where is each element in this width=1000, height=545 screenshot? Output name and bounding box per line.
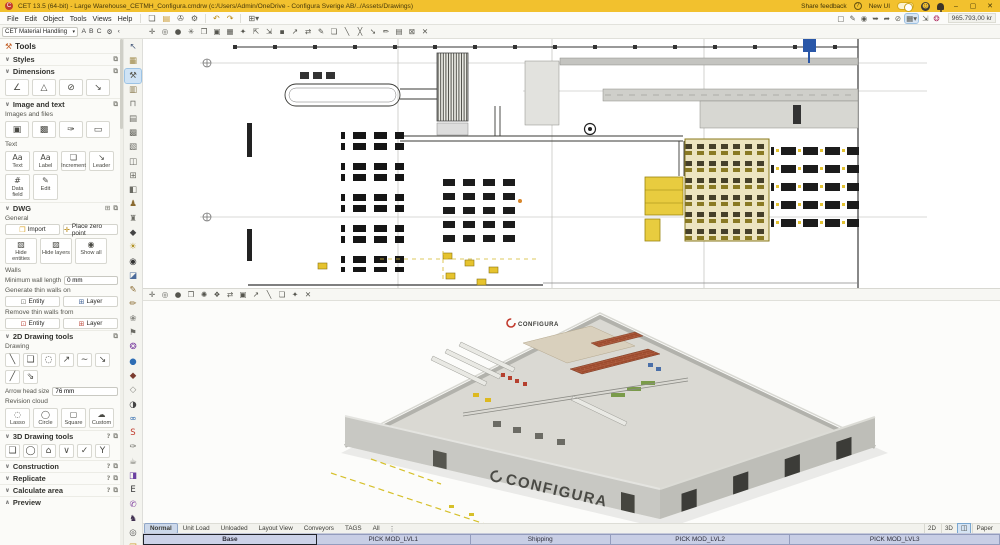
popout-icon[interactable]: ⧉: [113, 67, 118, 76]
sketch-icon[interactable]: ✏: [125, 297, 141, 311]
hatched-rack-block: [437, 53, 468, 121]
snap-line-icon[interactable]: ➥: [871, 14, 879, 23]
render-mode-icon[interactable]: ▣: [237, 289, 249, 300]
tool-label: Show all: [80, 250, 101, 256]
revision-lasso-tool[interactable]: ◌ Lasso: [5, 408, 30, 428]
component-icon-strip: ↖▦⚒▥⊓▤▩▧◫⊞◧♟♜◆☀◉◪✎✏❀⚑❂●◆◇◑∞S✑☕◨E✆♞◎❒: [124, 39, 143, 545]
tool-label: Edit: [41, 186, 51, 192]
check-3d-icon[interactable]: ✓: [77, 444, 92, 458]
tool-label: Increment: [61, 163, 86, 169]
data-field-tool[interactable]: # Data field: [5, 174, 30, 200]
arrow-icon[interactable]: ➘: [367, 26, 379, 37]
swap-3d-icon[interactable]: ⇄: [224, 289, 236, 300]
fit-view-icon[interactable]: ❒: [185, 289, 197, 300]
level-segment[interactable]: PICK MOD_LVL2: [611, 534, 791, 545]
arrow-head-size-input[interactable]: [52, 387, 118, 396]
layer-icon: ⊞: [79, 298, 85, 306]
valley-3d-icon[interactable]: ∨: [59, 444, 74, 458]
monitor-icon[interactable]: ◪: [125, 269, 141, 283]
insert-image-icon[interactable]: ▣: [5, 121, 29, 138]
favorite-slot-button[interactable]: C: [95, 28, 103, 35]
polygon-3d-icon[interactable]: ⌂: [41, 444, 56, 458]
favorite-slot-button[interactable]: A: [80, 28, 88, 35]
pallet-storage-center: [440, 177, 520, 249]
tool-glyph-icon: ▢: [70, 411, 78, 419]
text-tool[interactable]: Aa Text: [5, 151, 30, 171]
settings-gear-icon[interactable]: ⚙: [189, 14, 200, 23]
new-ui-label: New UI: [869, 3, 890, 10]
undo-icon[interactable]: ↶: [211, 14, 222, 23]
min-wall-length-input[interactable]: [64, 276, 118, 285]
viewport-3d-toolbar: ✛◎●❒✺❖⇄▣↗╲❏✦✕: [143, 288, 1000, 301]
maximize-button[interactable]: ▢: [968, 2, 978, 10]
tool-label: Label: [39, 163, 53, 169]
menu-item[interactable]: File: [4, 13, 22, 24]
increment-tool[interactable]: ❏ Increment: [61, 151, 86, 171]
tool-label: Square: [64, 420, 82, 426]
unit-loads-icon[interactable]: ▥: [125, 83, 141, 97]
scene-tabs-bar: NormalUnit LoadUnloadedLayout ViewConvey…: [143, 523, 1000, 533]
menu-bar: FileEditObjectToolsViewsHelp ❏▤✇⚙ ↶↷ ⊞▾ …: [0, 12, 1000, 25]
entity-icon: ⊡: [21, 320, 27, 328]
pallet-rack-icon[interactable]: ▤: [125, 111, 141, 125]
menu-item[interactable]: Help: [115, 13, 136, 24]
images-files-label: Images and files: [0, 110, 123, 119]
pallets-icon[interactable]: ▦: [125, 54, 141, 68]
sync-icon[interactable]: ∞: [125, 412, 141, 426]
level-segment[interactable]: PICK MOD_LVL3: [790, 534, 1000, 545]
mezzanine-icon[interactable]: ▧: [125, 140, 141, 154]
scene-tab[interactable]: Unit Load: [178, 524, 215, 533]
revision-custom-tool[interactable]: ☁ Custom: [89, 408, 114, 428]
popout-icon[interactable]: ⧉: [113, 486, 118, 495]
level-segment[interactable]: Base: [143, 534, 317, 545]
remove-layer-button[interactable]: ⊞Layer: [63, 318, 118, 329]
revision-cloud-label: Revision cloud: [0, 397, 123, 406]
cylinder-3d-icon[interactable]: ◯: [23, 444, 38, 458]
menu-item[interactable]: Views: [90, 13, 115, 24]
linear-dimension-icon[interactable]: ↘: [86, 79, 110, 96]
close-viewport-icon[interactable]: ✕: [419, 26, 431, 37]
section-replicate[interactable]: ∨Replicate ?⧉: [0, 472, 123, 484]
zoom-selection-3d-icon[interactable]: ●: [172, 289, 184, 300]
section-3d-drawing-tools[interactable]: ∨3D Drawing tools ?⧉: [0, 430, 123, 442]
hide-layers-button[interactable]: ▨ Hide layers: [40, 238, 72, 264]
tool-glyph-icon: ◉: [88, 241, 95, 249]
fill-icon[interactable]: ▪: [276, 26, 288, 37]
viewport-image-icon[interactable]: ▭: [86, 121, 110, 138]
title-bar: C CET 13.5 (64-bit) - Large Warehouse_CE…: [0, 0, 1000, 12]
tool-label: Data field: [6, 186, 29, 198]
grid-icon[interactable]: ▦: [224, 26, 236, 37]
open-folder-icon[interactable]: ▤: [161, 14, 173, 23]
tool-label: Circle: [38, 420, 52, 426]
viewport-2d-toolbar: ✛◎●✳❐▣▦✦⇱⇲▪↗⇄✎❏╲╳➘✏▤⊠✕: [143, 25, 1000, 39]
snap-icon[interactable]: ✦: [237, 26, 249, 37]
revision-circle-tool[interactable]: ◯ Circle: [33, 408, 58, 428]
min-wall-length-label: Minimum wall length: [5, 277, 61, 284]
tool-label: Lasso: [10, 420, 25, 426]
tool-label: Hide entities: [6, 250, 36, 262]
loop-stations: [300, 72, 335, 79]
annotation-icon[interactable]: ✑: [125, 440, 141, 454]
text-label: Text: [0, 140, 123, 149]
tools-panel-header: ⚒ Tools: [0, 39, 123, 53]
region-icon[interactable]: ⊠: [406, 26, 418, 37]
folder-icon: ❒: [19, 226, 25, 234]
ribbon-gear-icon[interactable]: ⚙: [105, 28, 114, 36]
share-feedback-link[interactable]: Share feedback: [801, 3, 847, 10]
snap-point-icon[interactable]: ◉: [860, 14, 869, 23]
move-3d-icon[interactable]: ↗: [250, 289, 262, 300]
section-preview[interactable]: ∧Preview: [0, 496, 123, 508]
area-dimension-icon[interactable]: △: [32, 79, 56, 96]
previous-view-icon[interactable]: ❐: [198, 26, 210, 37]
generate-entity-button[interactable]: ⊡Entity: [5, 296, 60, 307]
snap-angle-icon[interactable]: ➦: [883, 14, 891, 23]
tool-glyph-icon: ▧: [17, 241, 25, 249]
scene-tab[interactable]: Conveyors: [299, 524, 339, 533]
media-panel-icon[interactable]: ◨: [125, 469, 141, 483]
zoom-extents-icon[interactable]: ✳: [185, 26, 197, 37]
view-3d-button[interactable]: 3D: [941, 524, 956, 533]
cad-icon[interactable]: ◆: [125, 369, 141, 383]
scene-tab[interactable]: Layout View: [254, 524, 298, 533]
dwg-list-icon[interactable]: ⊞: [105, 204, 110, 213]
menu-item[interactable]: Tools: [67, 13, 90, 24]
edit-text-tool[interactable]: ✎ Edit: [33, 174, 58, 200]
section-dwg[interactable]: ∨DWG ⊞⧉: [0, 202, 123, 214]
line-icon[interactable]: ╲: [341, 26, 353, 37]
collapse-panel-icon[interactable]: ‹: [116, 28, 121, 35]
configura-logo: CONFIGURA: [507, 319, 559, 328]
place-zero-point-button[interactable]: ✛ Place zero point: [63, 224, 118, 235]
minimize-button[interactable]: –: [951, 3, 961, 10]
new-ui-toggle[interactable]: [897, 2, 914, 10]
save-icon[interactable]: ✇: [175, 14, 186, 23]
new-drawing-icon[interactable]: ❏: [146, 14, 157, 23]
coordinates-readout: 965.793,00 kr: [948, 13, 996, 23]
copy-3d-icon[interactable]: ❏: [276, 289, 288, 300]
erase-icon[interactable]: ╳: [354, 26, 366, 37]
popout-icon[interactable]: ⧉: [113, 432, 118, 441]
render-icon[interactable]: ❀: [125, 312, 141, 326]
diameter-dimension-icon[interactable]: ⊘: [59, 79, 83, 96]
arrow-head-size-label: Arrow head size: [5, 388, 49, 395]
scene-tab[interactable]: TAGS: [340, 524, 367, 533]
machinery-icon[interactable]: ◧: [125, 183, 141, 197]
layer-icon: ⊞: [79, 320, 85, 328]
section-calculate-area[interactable]: ∨Calculate area ?⧉: [0, 484, 123, 496]
more-tabs-icon[interactable]: ⋮: [386, 525, 399, 533]
tool-glyph-icon: ▨: [52, 241, 60, 249]
angular-dimension-icon[interactable]: ∠: [5, 79, 29, 96]
redo-icon[interactable]: ↷: [225, 14, 236, 23]
level-segment[interactable]: Shipping: [471, 534, 611, 545]
section-icon[interactable]: ╲: [263, 289, 275, 300]
close-3d-viewport-icon[interactable]: ✕: [302, 289, 314, 300]
import-button[interactable]: ❒ Import: [5, 224, 60, 235]
level-bar: BasePICK MOD_LVL1ShippingPICK MOD_LVL2PI…: [143, 533, 1000, 545]
tool-glyph-icon: Aa: [12, 154, 22, 162]
e-learning-icon[interactable]: E: [125, 483, 141, 497]
popout-icon[interactable]: ⧉: [113, 462, 118, 471]
tool-glyph-icon: Aa: [40, 154, 50, 162]
flag-icon[interactable]: ⚑: [125, 326, 141, 340]
help-icon[interactable]: ?: [107, 474, 111, 483]
move-icon[interactable]: ↗: [289, 26, 301, 37]
scene-tab[interactable]: All: [368, 524, 385, 533]
menu-item[interactable]: Edit: [22, 13, 40, 24]
section-styles[interactable]: ∨Styles ⧉: [0, 53, 123, 65]
tool-label: Leader: [93, 163, 110, 169]
sidebar-scrollbar[interactable]: [120, 39, 123, 545]
label-tool[interactable]: Aa Label: [33, 151, 58, 171]
vehicle-icon[interactable]: ◉: [125, 254, 141, 268]
remove-entity-button[interactable]: ⊡Entity: [5, 318, 60, 329]
insert-table-icon[interactable]: ⊞▾: [246, 14, 261, 23]
section-construction[interactable]: ∨Construction ?⧉: [0, 460, 123, 472]
sun-icon[interactable]: ✦: [289, 289, 301, 300]
send-back-icon[interactable]: ⇱: [250, 26, 262, 37]
gauge-icon[interactable]: ◑: [125, 397, 141, 411]
hide-entities-button[interactable]: ▧ Hide entities: [5, 238, 37, 264]
copy-icon[interactable]: ❏: [328, 26, 340, 37]
rectangle-tool-icon[interactable]: ❑: [23, 353, 38, 367]
save-view-icon[interactable]: ▣: [211, 26, 223, 37]
scene-tab[interactable]: Normal: [145, 524, 177, 533]
folder-icon[interactable]: ❒: [125, 540, 141, 545]
viewport-3d-canvas[interactable]: CONFIGURA: [143, 301, 1000, 523]
material-handling-tools-icon[interactable]: ⚒: [125, 69, 141, 83]
help-icon[interactable]: ?: [107, 486, 111, 495]
revision-square-tool[interactable]: ▢ Square: [61, 408, 86, 428]
annotate-icon[interactable]: ✏: [380, 26, 392, 37]
dock-equipment-icon[interactable]: ⊓: [125, 97, 141, 111]
tool-glyph-icon: ☁: [98, 411, 106, 419]
record-icon[interactable]: ❂: [932, 14, 940, 23]
generate-layer-button[interactable]: ⊞Layer: [63, 296, 118, 307]
pinwheel-icon[interactable]: ❂: [125, 340, 141, 354]
drawing-label: Drawing: [0, 342, 123, 351]
leader-tool[interactable]: ↘ Leader: [89, 151, 114, 171]
frame-icon[interactable]: ▢: [836, 14, 845, 23]
remove-thin-walls-label: Remove thin walls from: [0, 308, 123, 317]
crane-symbol: [803, 39, 816, 52]
split-view-button[interactable]: ◫: [958, 524, 971, 533]
tool-label: Custom: [92, 420, 111, 426]
tool-label: Hide layers: [42, 250, 70, 256]
menu-item[interactable]: Object: [40, 13, 67, 24]
tool-label: Text: [12, 163, 22, 169]
wye-3d-icon[interactable]: Y: [95, 444, 110, 458]
conveyor-icon[interactable]: ◫: [125, 154, 141, 168]
tool-glyph-icon: ❏: [70, 154, 77, 162]
favorite-slot-button[interactable]: B: [88, 28, 96, 35]
search-icon[interactable]: ◎: [125, 526, 141, 540]
line-tool-icon[interactable]: ╲: [5, 353, 20, 367]
box-3d-icon[interactable]: ❑: [5, 444, 20, 458]
forklift-icon[interactable]: ◆: [125, 226, 141, 240]
window-title: CET 13.5 (64-bit) - Large Warehouse_CETM…: [18, 3, 413, 10]
app-logo-icon: C: [5, 2, 13, 10]
operator-icon[interactable]: ♟: [125, 197, 141, 211]
extension-ribbon: CET Material Handling▾ ABC ⚙ ‹: [0, 25, 143, 39]
workstation-icon[interactable]: ⊞: [125, 169, 141, 183]
lighting-icon[interactable]: ☀: [125, 240, 141, 254]
tools-icon: ⚒: [5, 42, 12, 51]
leader-arrow-tool-icon[interactable]: ⇘: [23, 370, 38, 384]
grid-settings-icon[interactable]: ▦▾: [905, 14, 918, 23]
help-icon[interactable]: ?: [107, 462, 111, 471]
image-frame-icon[interactable]: ▩: [32, 121, 56, 138]
select-tool-icon[interactable]: ↖: [125, 40, 141, 54]
extension-selector[interactable]: CET Material Handling▾: [2, 27, 78, 37]
level-segment[interactable]: PICK MOD_LVL1: [317, 534, 471, 545]
warehouse-3d-render: CONFIGURA: [143, 301, 1000, 523]
arrow-tool-icon[interactable]: ↗: [59, 353, 74, 367]
edit-icon[interactable]: ✎: [315, 26, 327, 37]
pan-3d-icon[interactable]: ✛: [146, 289, 158, 300]
generate-thin-walls-label: Generate thin walls on: [0, 286, 123, 295]
swap-icon[interactable]: ⇄: [302, 26, 314, 37]
user-avatar[interactable]: ☻: [921, 2, 930, 11]
pencil-icon[interactable]: ✎: [125, 283, 141, 297]
entity-icon: ⊡: [21, 298, 27, 306]
shelving-icon[interactable]: ▩: [125, 126, 141, 140]
sketchup-icon[interactable]: S: [125, 426, 141, 440]
section-image-and-text[interactable]: ∨Image and text ⧉: [0, 98, 123, 110]
svg-text:CONFIGURA: CONFIGURA: [518, 322, 559, 328]
layers-icon[interactable]: ▤: [393, 26, 405, 37]
section-dimensions[interactable]: ∨Dimensions ⧉: [0, 65, 123, 77]
pick-module: [645, 139, 769, 241]
popout-icon[interactable]: ⧉: [113, 204, 118, 213]
bucket-icon[interactable]: ☕: [125, 455, 141, 469]
crane-icon[interactable]: ♜: [125, 212, 141, 226]
popout-icon[interactable]: ⧉: [113, 474, 118, 483]
view-2d-button[interactable]: 2D: [924, 524, 939, 533]
floorplan-drawing: [143, 39, 1000, 288]
curve-tool-icon[interactable]: ∼: [77, 353, 92, 367]
tool-glyph-icon: ↘: [98, 154, 105, 162]
support-icon[interactable]: ✆: [125, 498, 141, 512]
scene-tab[interactable]: Unloaded: [216, 524, 253, 533]
tool-glyph-icon: ◯: [41, 411, 50, 419]
viewport-2d-canvas[interactable]: [143, 39, 1000, 288]
measure-icon[interactable]: ⇲: [921, 14, 929, 23]
paper-view-button[interactable]: Paper: [972, 524, 996, 533]
popout-icon[interactable]: ⧉: [113, 55, 118, 64]
close-button[interactable]: ✕: [985, 2, 995, 10]
tool-glyph-icon: ✎: [42, 177, 49, 185]
help-icon[interactable]: ?: [107, 432, 111, 441]
staging-areas: [525, 58, 858, 128]
export-icon[interactable]: ◇: [125, 383, 141, 397]
section-2d-drawing-tools[interactable]: ∨2D Drawing tools ⧉: [0, 330, 123, 342]
tools-panel: ⚒ Tools ∨Styles ⧉ ∨Dimensions ⧉ ∠△⊘↘ ∨Im…: [0, 39, 124, 545]
tool-glyph-icon: #: [14, 177, 21, 185]
draw-icon[interactable]: ✎: [848, 14, 856, 23]
operator-marker: [518, 199, 522, 203]
polyline-tool-icon[interactable]: ╱: [5, 370, 20, 384]
plus-icon: ✛: [64, 226, 70, 234]
bring-front-icon[interactable]: ⇲: [263, 26, 275, 37]
walkthrough-icon[interactable]: ❖: [211, 289, 223, 300]
pallet-storage-west: [341, 127, 404, 272]
rack-rows-east: [771, 141, 859, 227]
tool-glyph-icon: ◌: [14, 411, 21, 419]
no-snap-icon[interactable]: ⊘: [894, 14, 902, 23]
orbit-icon[interactable]: ✺: [198, 289, 210, 300]
attach-file-icon[interactable]: ✑: [59, 121, 83, 138]
zoom-3d-icon[interactable]: ◎: [159, 289, 171, 300]
circle-tool-icon[interactable]: ◌: [41, 353, 56, 367]
popout-icon[interactable]: ⧉: [113, 332, 118, 341]
notifications-bell-icon[interactable]: [937, 3, 944, 10]
figure-icon[interactable]: ♞: [125, 512, 141, 526]
pan-icon[interactable]: ✛: [146, 26, 158, 37]
double-arrow-tool-icon[interactable]: ↘: [95, 353, 110, 367]
walls-label: Walls: [0, 266, 123, 275]
help-icon[interactable]: ?: [854, 2, 862, 10]
globe-icon[interactable]: ●: [125, 355, 141, 369]
zoom-icon[interactable]: ◎: [159, 26, 171, 37]
show-all-button[interactable]: ◉ Show all: [75, 238, 107, 264]
zoom-selection-icon[interactable]: ●: [172, 26, 184, 37]
popout-icon[interactable]: ⧉: [113, 100, 118, 109]
